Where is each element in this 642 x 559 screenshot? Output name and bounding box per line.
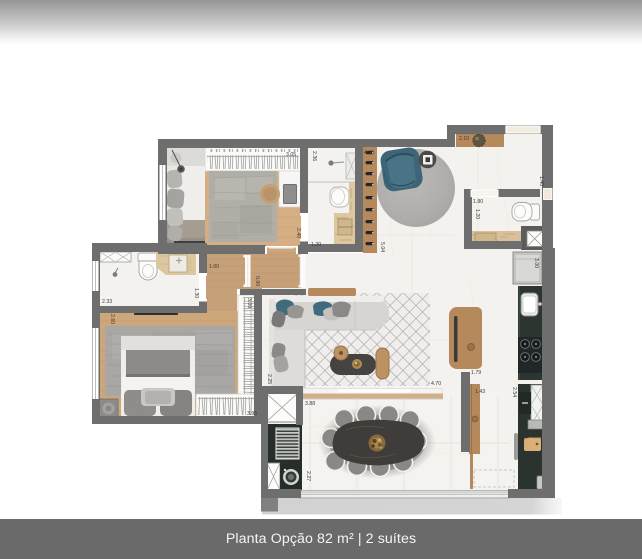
- svg-text:4.70: 4.70: [431, 381, 441, 387]
- svg-text:4.35: 4.35: [364, 150, 374, 156]
- svg-text:3.05: 3.05: [286, 152, 296, 158]
- svg-text:2.36: 2.36: [311, 151, 317, 161]
- svg-text:3.00: 3.00: [533, 258, 539, 268]
- svg-text:1.80: 1.80: [473, 199, 483, 205]
- svg-text:1.43: 1.43: [475, 389, 485, 395]
- svg-text:2.25: 2.25: [266, 374, 272, 384]
- svg-text:3.88: 3.88: [305, 401, 315, 407]
- svg-text:0.90: 0.90: [254, 276, 260, 286]
- svg-text:2.27: 2.27: [305, 471, 311, 481]
- svg-text:1.00: 1.00: [209, 264, 219, 270]
- svg-text:1.20: 1.20: [474, 209, 480, 219]
- svg-text:1.79: 1.79: [471, 370, 481, 376]
- svg-text:1.40: 1.40: [538, 176, 544, 186]
- svg-text:3.95: 3.95: [247, 411, 257, 417]
- svg-text:2.60: 2.60: [109, 314, 115, 324]
- svg-text:2.54: 2.54: [511, 387, 517, 397]
- svg-text:3.00: 3.00: [246, 298, 252, 308]
- svg-text:2.10: 2.10: [459, 136, 469, 142]
- svg-text:5.04: 5.04: [379, 242, 385, 252]
- svg-text:1.20: 1.20: [311, 242, 321, 248]
- svg-text:1.30: 1.30: [193, 288, 199, 298]
- svg-text:2.40: 2.40: [295, 228, 301, 238]
- svg-text:2.33: 2.33: [102, 299, 112, 305]
